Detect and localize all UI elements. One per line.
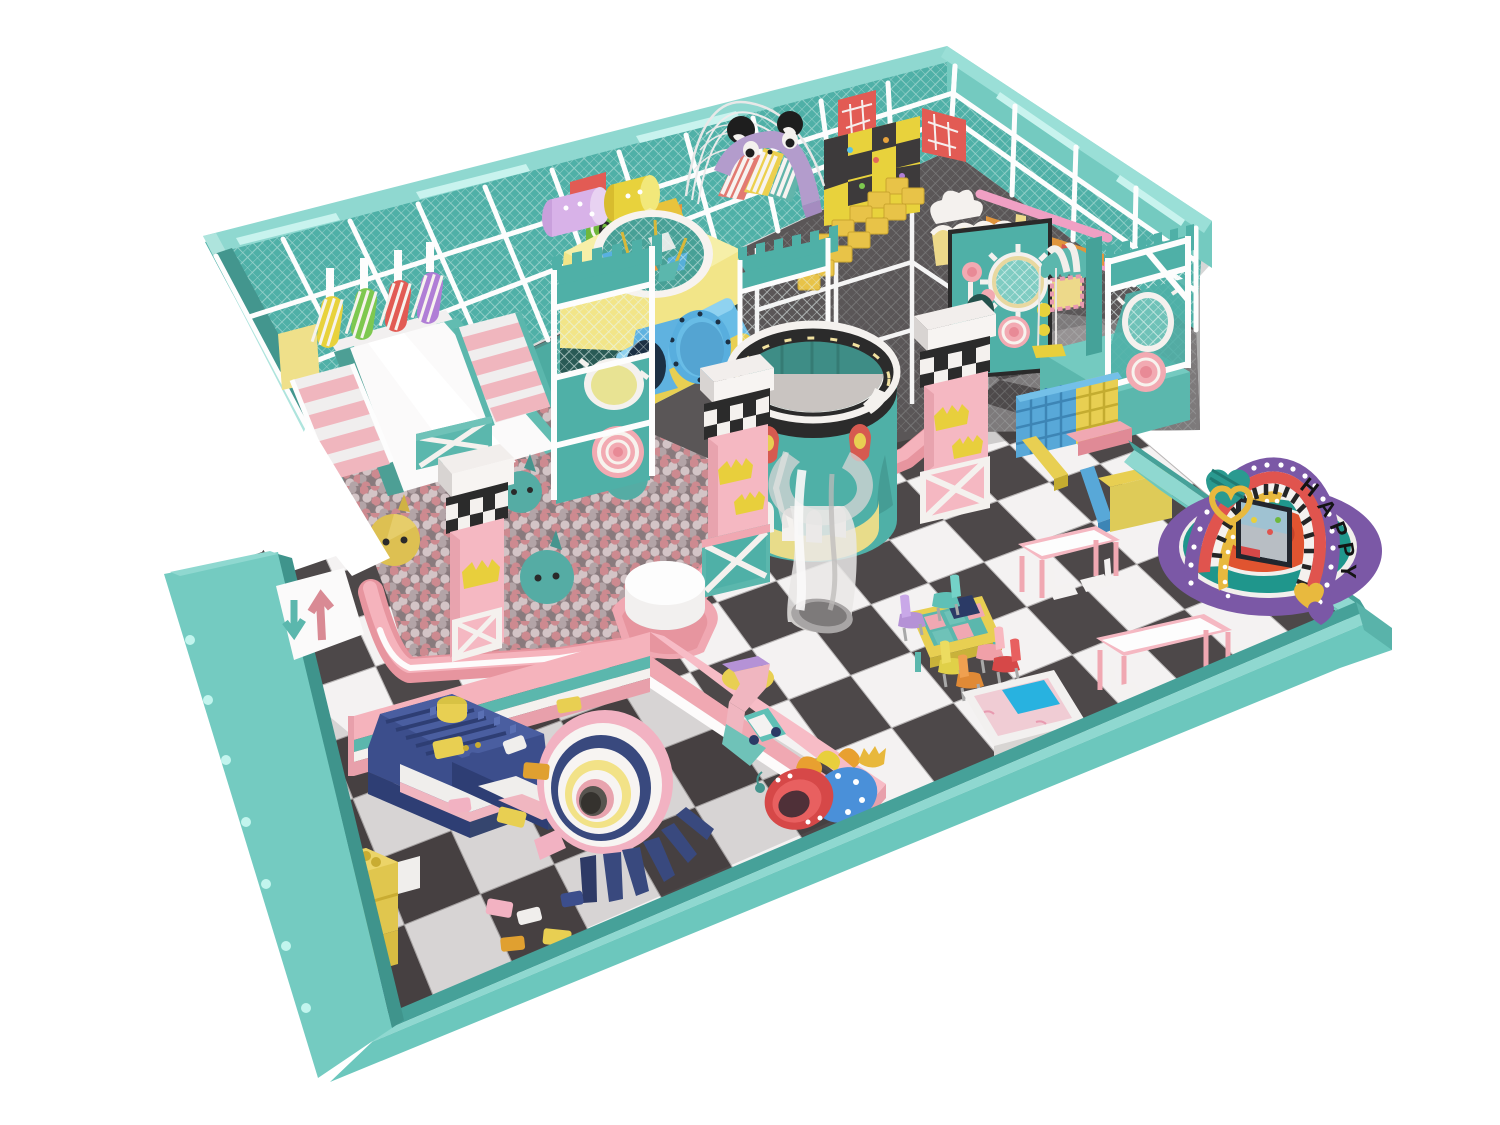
- svg-text:Y: Y: [1336, 563, 1362, 579]
